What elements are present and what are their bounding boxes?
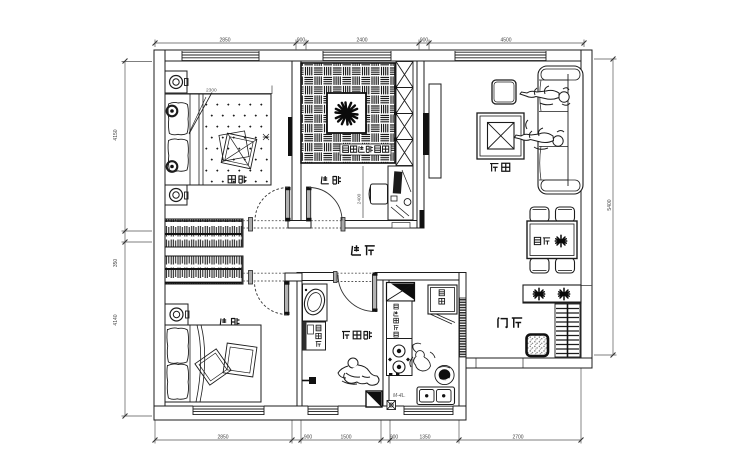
svg-text:1350: 1350 <box>419 435 430 441</box>
svg-text:900: 900 <box>420 38 429 44</box>
svg-text:2850: 2850 <box>219 38 230 44</box>
svg-text:5400: 5400 <box>607 199 613 210</box>
svg-text:1500: 1500 <box>340 435 351 441</box>
svg-text:2700: 2700 <box>512 435 523 441</box>
svg-text:2850: 2850 <box>217 435 228 441</box>
svg-text:900: 900 <box>390 435 399 441</box>
svg-text:900: 900 <box>297 38 306 44</box>
svg-text:4150: 4150 <box>113 129 119 140</box>
svg-text:4140: 4140 <box>113 314 119 325</box>
svg-text:900: 900 <box>304 435 313 441</box>
svg-text:M-4L.: M-4L. <box>393 393 406 399</box>
svg-text:2400: 2400 <box>357 193 363 204</box>
svg-text:2400: 2400 <box>356 38 367 44</box>
svg-text:350: 350 <box>113 259 119 268</box>
svg-text:4500: 4500 <box>500 38 511 44</box>
